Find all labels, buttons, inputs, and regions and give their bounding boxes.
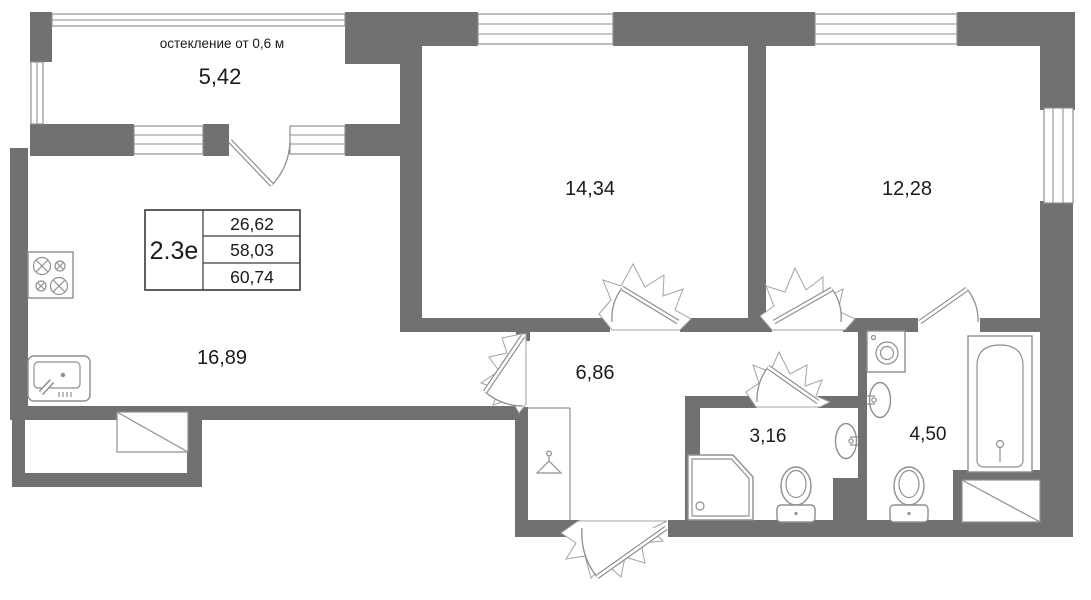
hallway-area-label: 6,86 <box>576 362 615 384</box>
wall <box>748 44 766 332</box>
floor-plan-canvas: остекление от 0,6 м 5,42 14,34 12,28 16,… <box>0 0 1091 600</box>
wall <box>980 318 1040 332</box>
wall <box>345 124 400 156</box>
floor-plan: остекление от 0,6 м 5,42 14,34 12,28 16,… <box>0 0 1091 600</box>
door-swing-icon <box>920 289 978 322</box>
wall <box>613 12 815 46</box>
window-icon <box>478 14 613 44</box>
balcony-glazing <box>31 14 345 124</box>
entrance-door-swing-icon <box>582 528 666 577</box>
window-icon <box>815 14 957 44</box>
washing-machine-icon <box>867 331 905 372</box>
stove-icon <box>28 252 73 298</box>
kitchen-sink-icon <box>28 356 90 401</box>
duct-shaft-icon <box>962 480 1040 522</box>
wall <box>400 12 478 46</box>
wall <box>400 12 422 330</box>
wall <box>680 318 772 332</box>
wall <box>10 406 523 420</box>
wall <box>1040 46 1075 110</box>
shower-cabin-icon <box>688 455 753 520</box>
balcony-area-label: 5,42 <box>199 64 242 89</box>
bathtub-icon <box>968 336 1032 472</box>
wall <box>957 12 1075 46</box>
wall <box>187 420 202 473</box>
kitchen-living-area-label: 16,89 <box>197 347 247 369</box>
wall <box>30 124 134 156</box>
window-icon <box>134 126 203 154</box>
plan-type-label: 2.3е <box>150 237 199 265</box>
wall-sink-icon <box>836 424 859 459</box>
toilet-icon <box>890 467 928 522</box>
wall <box>12 473 202 487</box>
wall <box>515 407 528 537</box>
spec-table: 2.3е 26,62 58,03 60,74 <box>145 210 300 290</box>
wall <box>400 318 610 332</box>
bedroom-2-area-label: 12,28 <box>882 178 932 200</box>
window-icon <box>290 126 345 154</box>
spec-value-1: 26,62 <box>230 214 274 234</box>
wall <box>1040 201 1073 537</box>
window-icon <box>1044 108 1073 203</box>
door-swing-icon <box>485 336 523 406</box>
door-swing-icon <box>230 141 290 185</box>
wall <box>10 148 28 420</box>
toilet-icon <box>777 467 815 522</box>
spec-value-2: 58,03 <box>230 240 274 260</box>
coat-hanger-icon <box>528 408 570 520</box>
wall <box>203 124 229 156</box>
wall <box>685 396 757 408</box>
alcove-window-icon <box>117 412 188 452</box>
wall-sink-icon <box>867 383 891 418</box>
shower-room-area-label: 3,16 <box>750 426 787 447</box>
wall <box>30 12 52 62</box>
wall <box>953 470 962 523</box>
wall <box>345 12 400 64</box>
bedroom-1-area-label: 14,34 <box>565 178 615 200</box>
spec-value-3: 60,74 <box>230 267 274 287</box>
balcony-glazing-note: остекление от 0,6 м <box>160 36 284 51</box>
bathroom-area-label: 4,50 <box>910 424 947 445</box>
duct-shaft-icon <box>833 478 862 523</box>
